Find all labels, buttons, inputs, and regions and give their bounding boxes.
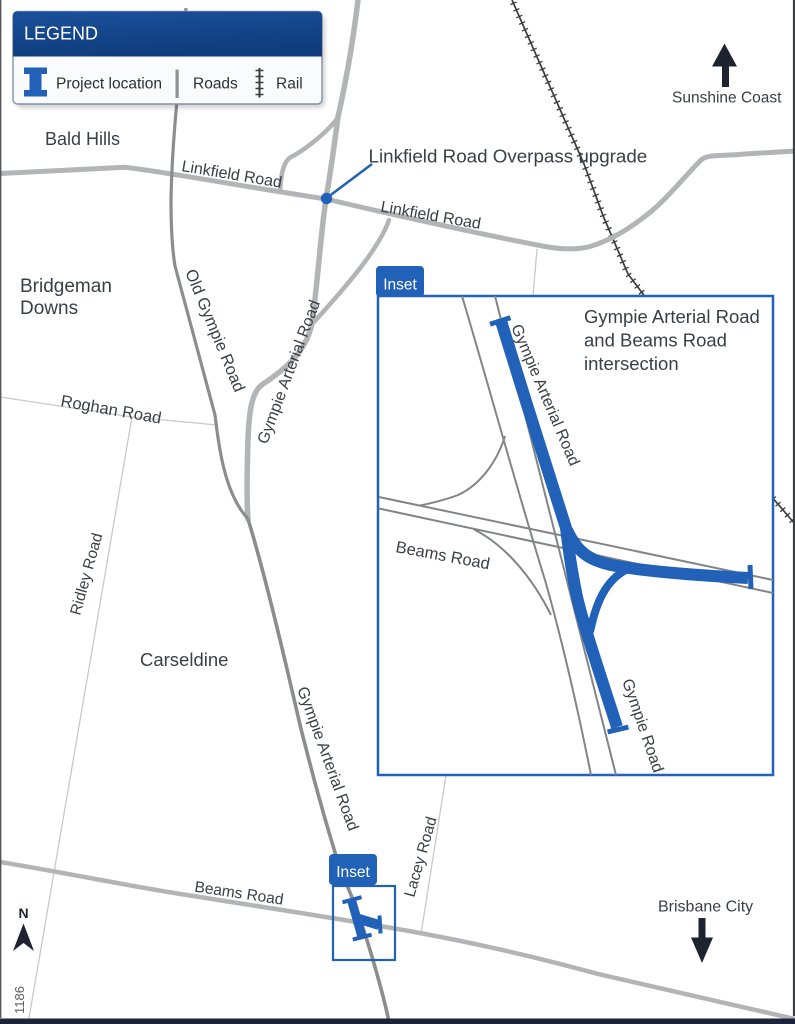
svg-text:1186: 1186 xyxy=(12,986,27,1014)
svg-text:Downs: Downs xyxy=(20,298,78,319)
svg-text:Bridgeman: Bridgeman xyxy=(20,276,112,297)
svg-text:Inset: Inset xyxy=(336,864,370,881)
svg-text:N: N xyxy=(19,905,29,921)
svg-text:Rail: Rail xyxy=(276,76,303,93)
svg-text:Project location: Project location xyxy=(56,76,162,93)
svg-text:Gympie Arterial Road: Gympie Arterial Road xyxy=(584,306,760,327)
svg-text:Carseldine: Carseldine xyxy=(140,649,228,670)
svg-text:Bald Hills: Bald Hills xyxy=(45,129,120,149)
svg-text:Inset: Inset xyxy=(383,277,417,294)
svg-text:intersection: intersection xyxy=(584,353,679,374)
svg-text:Brisbane City: Brisbane City xyxy=(658,899,753,916)
svg-text:and Beams Road: and Beams Road xyxy=(584,329,727,350)
svg-text:Sunshine Coast: Sunshine Coast xyxy=(672,90,782,107)
svg-text:Roads: Roads xyxy=(193,76,238,93)
svg-text:Linkfield Road Overpass upgrad: Linkfield Road Overpass upgrade xyxy=(369,146,648,167)
svg-text:LEGEND: LEGEND xyxy=(24,24,98,44)
